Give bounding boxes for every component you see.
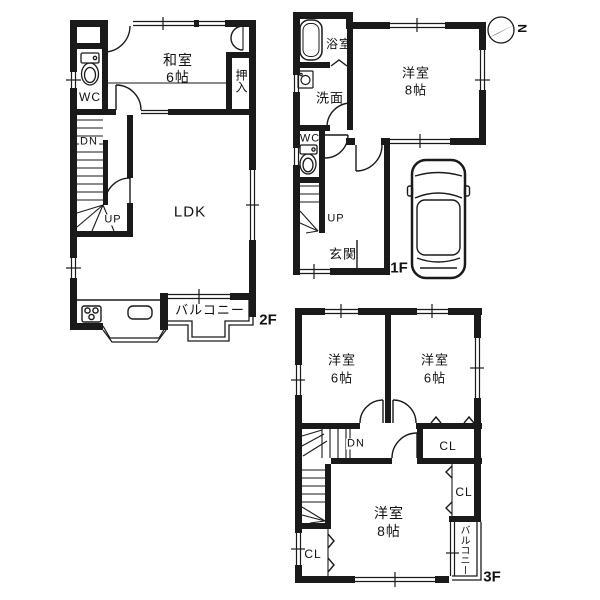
toilet-2f-icon [81,53,99,85]
floor-label-2f: 2F [259,313,277,328]
compass-icon [488,17,514,43]
bathtub-icon [300,20,322,60]
stove-icon [82,306,101,322]
sink-icon [128,306,152,319]
stairs-up-1f: UP [326,214,345,225]
floor-label-3f: 3F [483,570,501,585]
room-label-balcony-3f: バルコニー [458,525,468,575]
room-label-ldk: LDK [174,205,206,220]
closet-label-mid: CL [455,486,472,498]
room-size-washitsu: 6帖 [166,70,190,84]
bay-window-2f [103,326,166,342]
room-label-wc-1f: WC [300,134,320,145]
room-label-bath: 浴室 [326,38,352,50]
room-label-washroom: 洗面 [316,92,344,105]
room-size-3f-right: 6帖 [424,372,446,385]
room-size-3f-left: 6帖 [331,372,353,385]
floor-label-1f: 1F [390,261,408,276]
stairs-dn-2f: DN [79,137,99,148]
room-size-yoshitsu-1f: 8帖 [405,84,427,97]
toilet-1f-icon [300,145,317,174]
room-label-balcony-2f: バルコニー [175,304,245,317]
room-label-yoshitsu-1f: 洋室 [402,67,430,80]
room-label-genkan: 玄関 [329,248,357,261]
closet-label-top: CL [439,440,456,452]
stairs-up-2f: UP [103,215,122,226]
room-label-oshiire: 押入 [235,69,247,93]
compass-north-label: N [516,24,528,34]
room-label-washitsu: 和室 [163,53,193,67]
room-label-3f-main: 洋室 [374,506,404,520]
room-label-3f-left: 洋室 [328,354,356,367]
room-label-wc-2f: WC [79,91,101,103]
car-icon [408,160,470,278]
kitchen-2f [77,300,160,322]
closet-label-bottom: CL [304,548,321,560]
room-size-3f-main: 8帖 [377,524,401,538]
stairs-1f [300,186,319,233]
room-label-3f-right: 洋室 [421,354,449,367]
stairs-dn-3f: DN [346,439,366,450]
floorplan-page: 和室 6帖 押入 WC DN UP LDK バルコニー 2F 浴室 洗面 WC … [0,0,600,600]
washbasin-icon [298,71,313,88]
